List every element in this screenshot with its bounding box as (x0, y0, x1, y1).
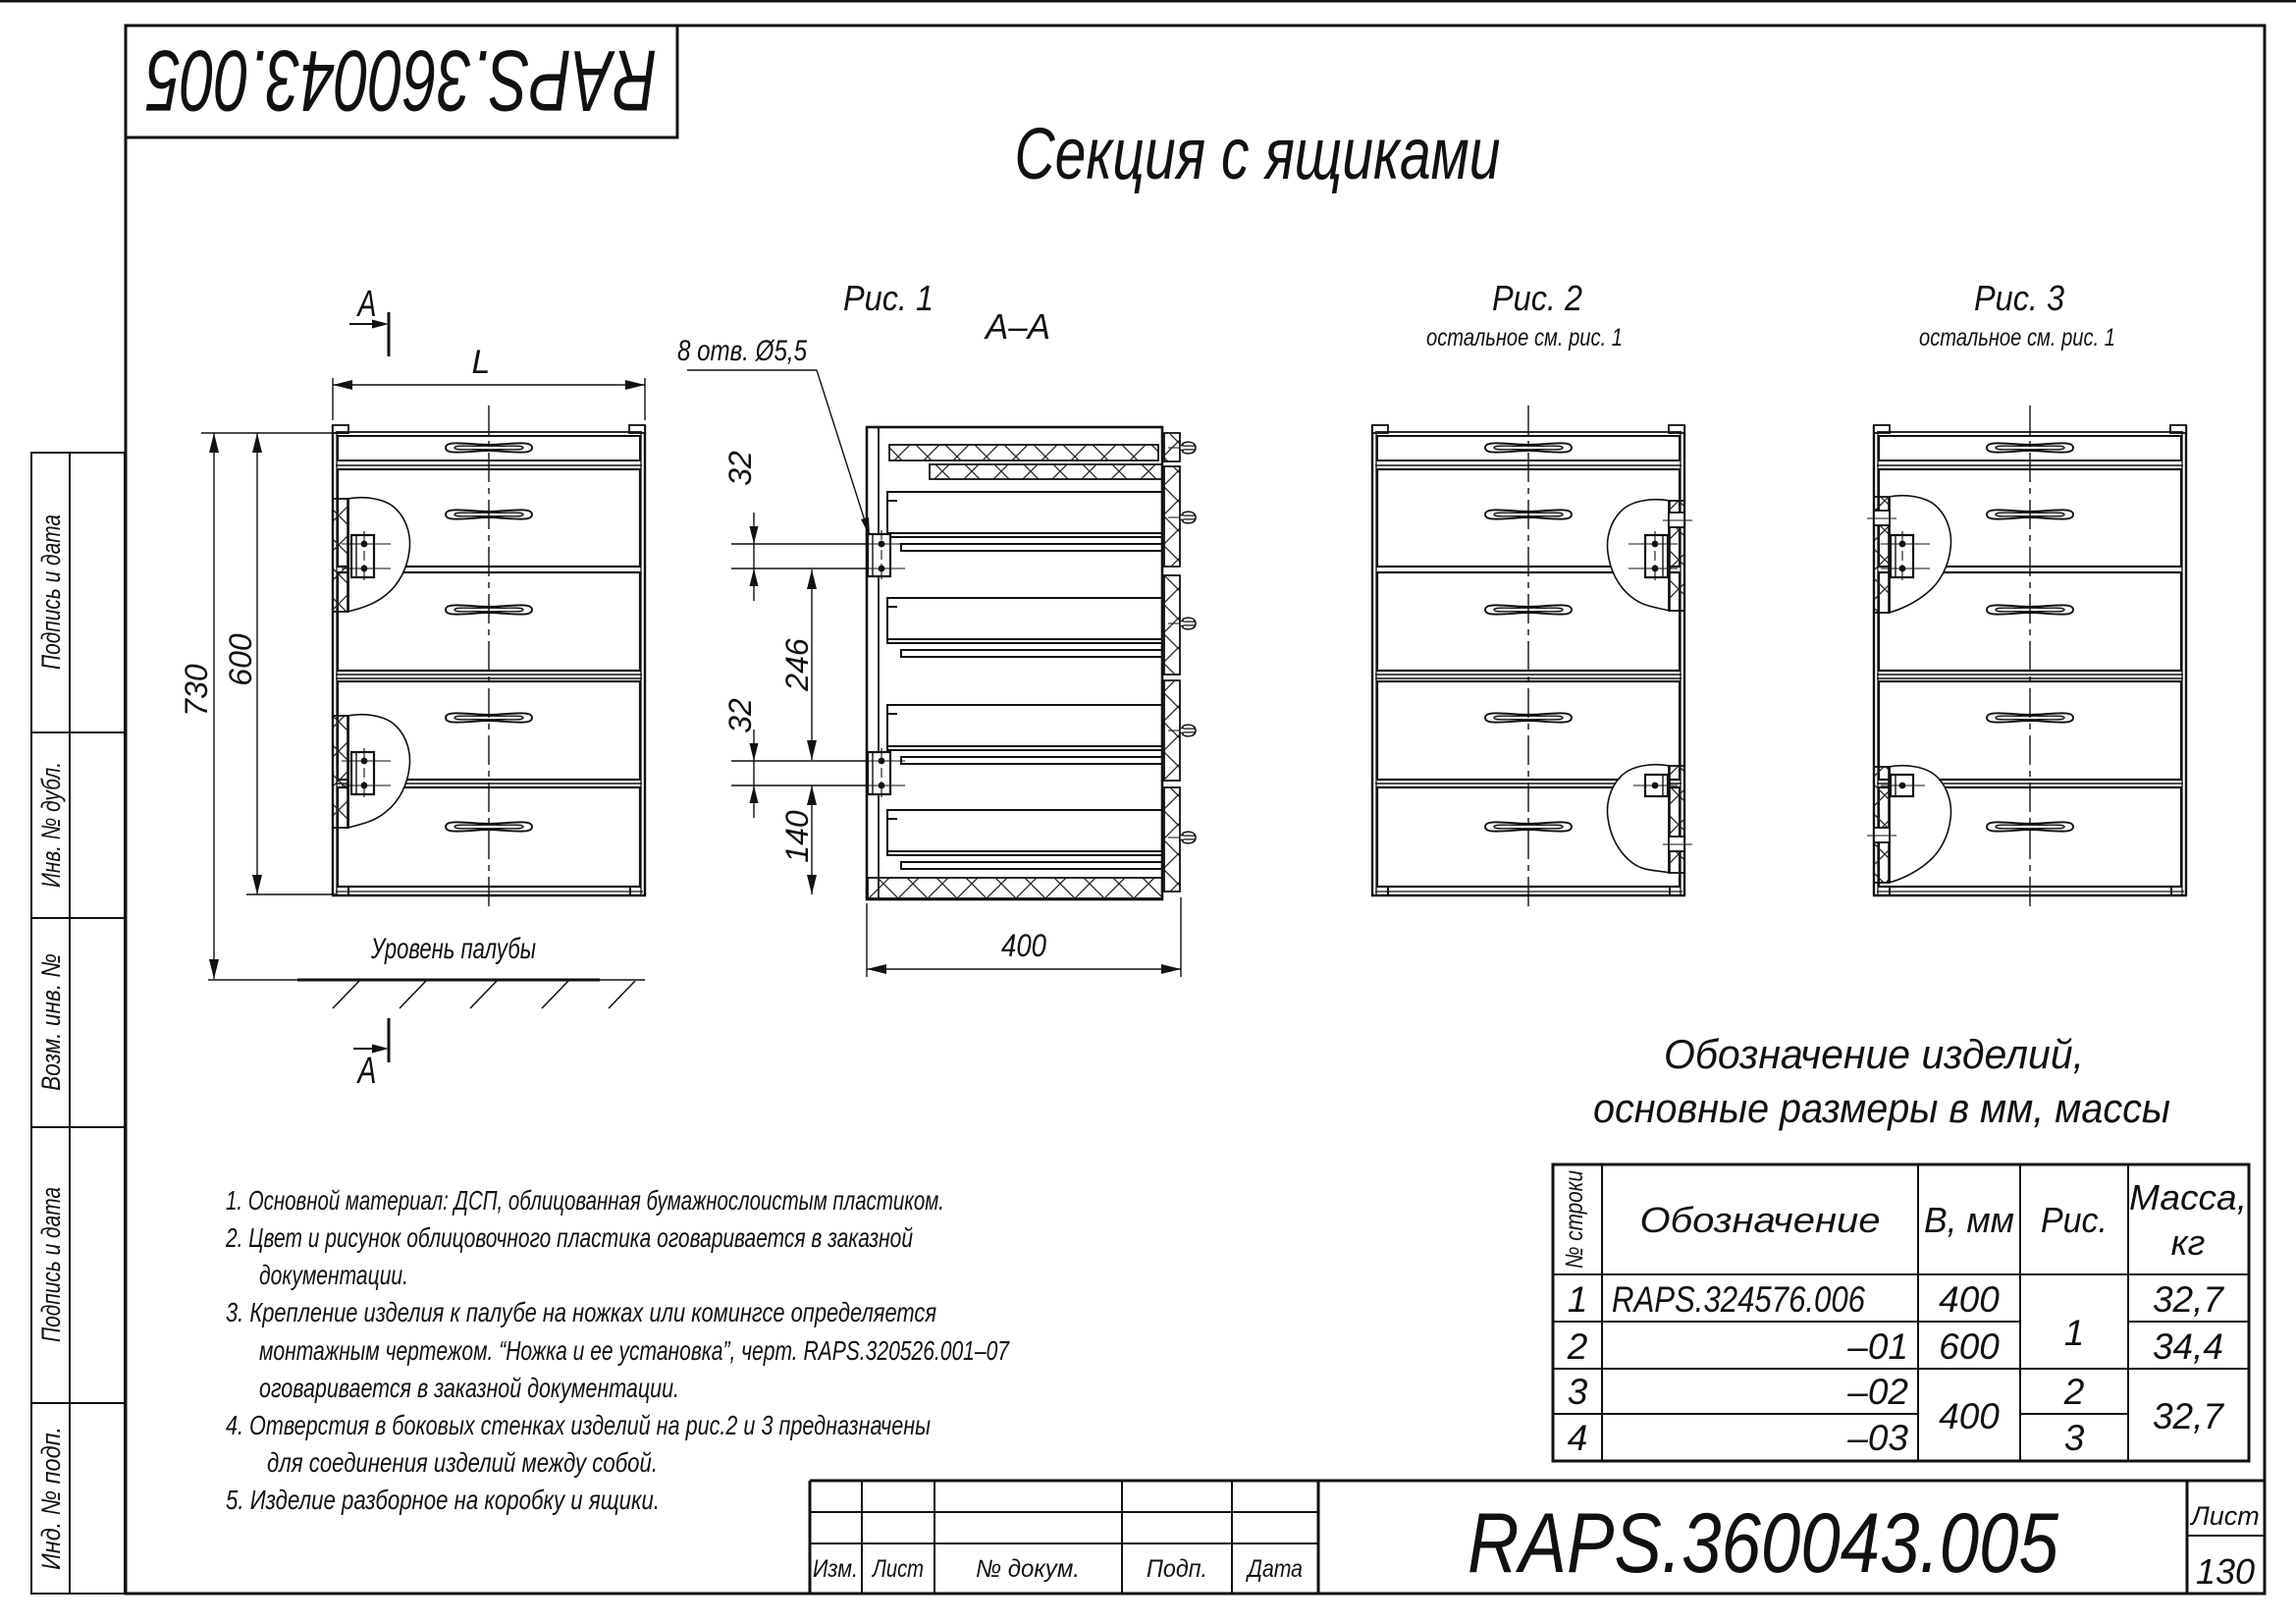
svg-text:Подпись и дата: Подпись и дата (36, 1187, 66, 1342)
svg-text:основные размеры в мм, массы: основные размеры в мм, массы (1593, 1085, 2170, 1131)
svg-text:Обозначение изделий,: Обозначение изделий, (1664, 1031, 2084, 1077)
svg-text:Подп.: Подп. (1147, 1555, 1207, 1583)
svg-text:32,7: 32,7 (2153, 1279, 2224, 1320)
svg-text:RAPS.360043.005: RAPS.360043.005 (1468, 1496, 2059, 1591)
svg-text:для соединения изделий между с: для соединения изделий между собой. (267, 1447, 658, 1478)
svg-text:4: 4 (1568, 1418, 1588, 1458)
svg-text:2. Цвет и рисунок облицовочног: 2. Цвет и рисунок облицовочного пластика… (225, 1222, 913, 1253)
svg-text:8 отв. Ø5,5: 8 отв. Ø5,5 (677, 335, 807, 367)
svg-text:Рис.: Рис. (2041, 1200, 2108, 1240)
svg-text:3. Крепление изделия к палубе: 3. Крепление изделия к палубе на ножках … (226, 1297, 936, 1327)
svg-text:3: 3 (2064, 1418, 2085, 1458)
svg-text:A–A: A–A (984, 306, 1050, 347)
svg-text:В, мм: В, мм (1924, 1200, 2014, 1240)
svg-text:Дата: Дата (1245, 1555, 1303, 1583)
svg-text:1: 1 (1568, 1279, 1588, 1320)
svg-text:Подпись и дата: Подпись и дата (36, 514, 66, 670)
svg-text:3: 3 (1568, 1372, 1588, 1412)
svg-text:Лист: Лист (2189, 1501, 2260, 1531)
svg-text:документации.: документации. (259, 1260, 408, 1290)
svg-text:Инв. № дубл.: Инв. № дубл. (36, 762, 66, 888)
svg-text:2: 2 (1567, 1326, 1588, 1367)
svg-text:1. Основной материал: ДСП, обл: 1. Основной материал: ДСП, облицованная … (226, 1185, 944, 1216)
svg-text:400: 400 (1001, 928, 1046, 963)
svg-text:RAPS.360043.005: RAPS.360043.005 (145, 32, 657, 130)
svg-text:A: A (356, 1051, 376, 1092)
svg-text:Уровень палубы: Уровень палубы (370, 933, 536, 965)
svg-text:Рис. 1: Рис. 1 (843, 278, 934, 318)
svg-text:400: 400 (1939, 1279, 2000, 1320)
svg-text:32,7: 32,7 (2153, 1396, 2224, 1436)
svg-text:32: 32 (722, 698, 758, 733)
svg-text:–01: –01 (1846, 1326, 1908, 1367)
svg-text:600: 600 (223, 633, 258, 686)
svg-text:A: A (356, 284, 376, 325)
svg-text:Секция с ящиками: Секция с ящиками (1015, 113, 1501, 194)
svg-text:2: 2 (2063, 1372, 2085, 1412)
svg-text:32: 32 (722, 451, 758, 486)
svg-text:130: 130 (2196, 1551, 2255, 1592)
svg-text:кг: кг (2171, 1222, 2206, 1263)
svg-text:600: 600 (1939, 1326, 2000, 1367)
svg-text:4. Отверстия в боковых стенках: 4. Отверстия в боковых стенках изделий н… (226, 1410, 931, 1440)
svg-text:Обозначение: Обозначение (1640, 1200, 1881, 1240)
svg-text:730: 730 (179, 664, 214, 717)
svg-text:400: 400 (1939, 1396, 2000, 1436)
svg-text:Рис. 2: Рис. 2 (1492, 278, 1582, 318)
svg-text:Возм. инв. №: Возм. инв. № (36, 953, 66, 1091)
svg-text:монтажным чертежом. “Ножка и е: монтажным чертежом. “Ножка и ее установк… (259, 1335, 1010, 1366)
svg-text:–03: –03 (1846, 1418, 1908, 1458)
svg-text:остальное см. рис. 1: остальное см. рис. 1 (1919, 324, 2115, 352)
svg-text:Масса,: Масса, (2129, 1177, 2247, 1217)
svg-text:1: 1 (2064, 1313, 2085, 1353)
svg-text:246: 246 (779, 638, 815, 692)
svg-text:Инд. № подп.: Инд. № подп. (36, 1427, 66, 1570)
svg-text:Рис. 3: Рис. 3 (1974, 278, 2064, 318)
svg-text:оговаривается в заказной докум: оговаривается в заказной документации. (259, 1373, 679, 1403)
svg-text:140: 140 (779, 810, 815, 863)
svg-text:34,4: 34,4 (2153, 1326, 2223, 1367)
svg-text:№ докум.: № докум. (976, 1555, 1080, 1583)
svg-text:5. Изделие разборное на коробк: 5. Изделие разборное на коробку и ящики. (226, 1485, 660, 1515)
svg-text:Лист: Лист (871, 1555, 924, 1583)
svg-text:№ строки: № строки (1561, 1170, 1588, 1269)
svg-text:остальное см. рис. 1: остальное см. рис. 1 (1426, 324, 1623, 352)
svg-text:L: L (472, 344, 491, 381)
svg-text:–02: –02 (1846, 1372, 1908, 1412)
svg-text:Изм.: Изм. (813, 1555, 858, 1583)
svg-text:RAPS.324576.006: RAPS.324576.006 (1612, 1279, 1865, 1320)
